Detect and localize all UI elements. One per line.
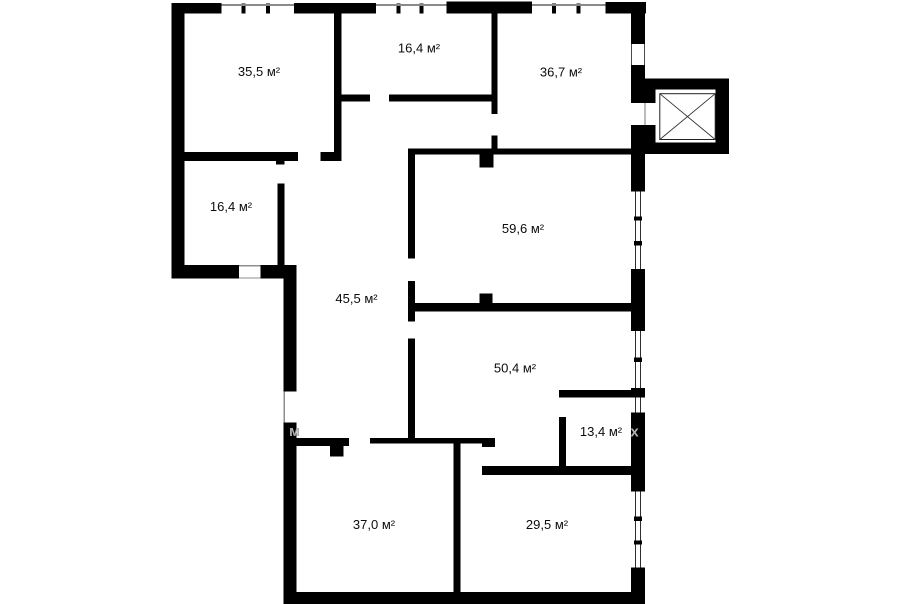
svg-text:х: х: [630, 424, 639, 441]
svg-text:29,5 м²: 29,5 м²: [526, 517, 569, 532]
svg-text:37,0 м²: 37,0 м²: [353, 517, 396, 532]
svg-text:16,4 м²: 16,4 м²: [398, 41, 441, 56]
svg-text:13,4 м²: 13,4 м²: [580, 424, 623, 439]
svg-text:45,5 м²: 45,5 м²: [335, 291, 378, 306]
svg-text:16,4 м²: 16,4 м²: [210, 199, 253, 214]
svg-text:36,7 м²: 36,7 м²: [540, 65, 583, 80]
svg-text:59,6 м²: 59,6 м²: [502, 221, 545, 236]
svg-text:м: м: [289, 423, 300, 440]
svg-text:35,5 м²: 35,5 м²: [238, 64, 281, 79]
svg-text:50,4 м²: 50,4 м²: [494, 360, 537, 375]
